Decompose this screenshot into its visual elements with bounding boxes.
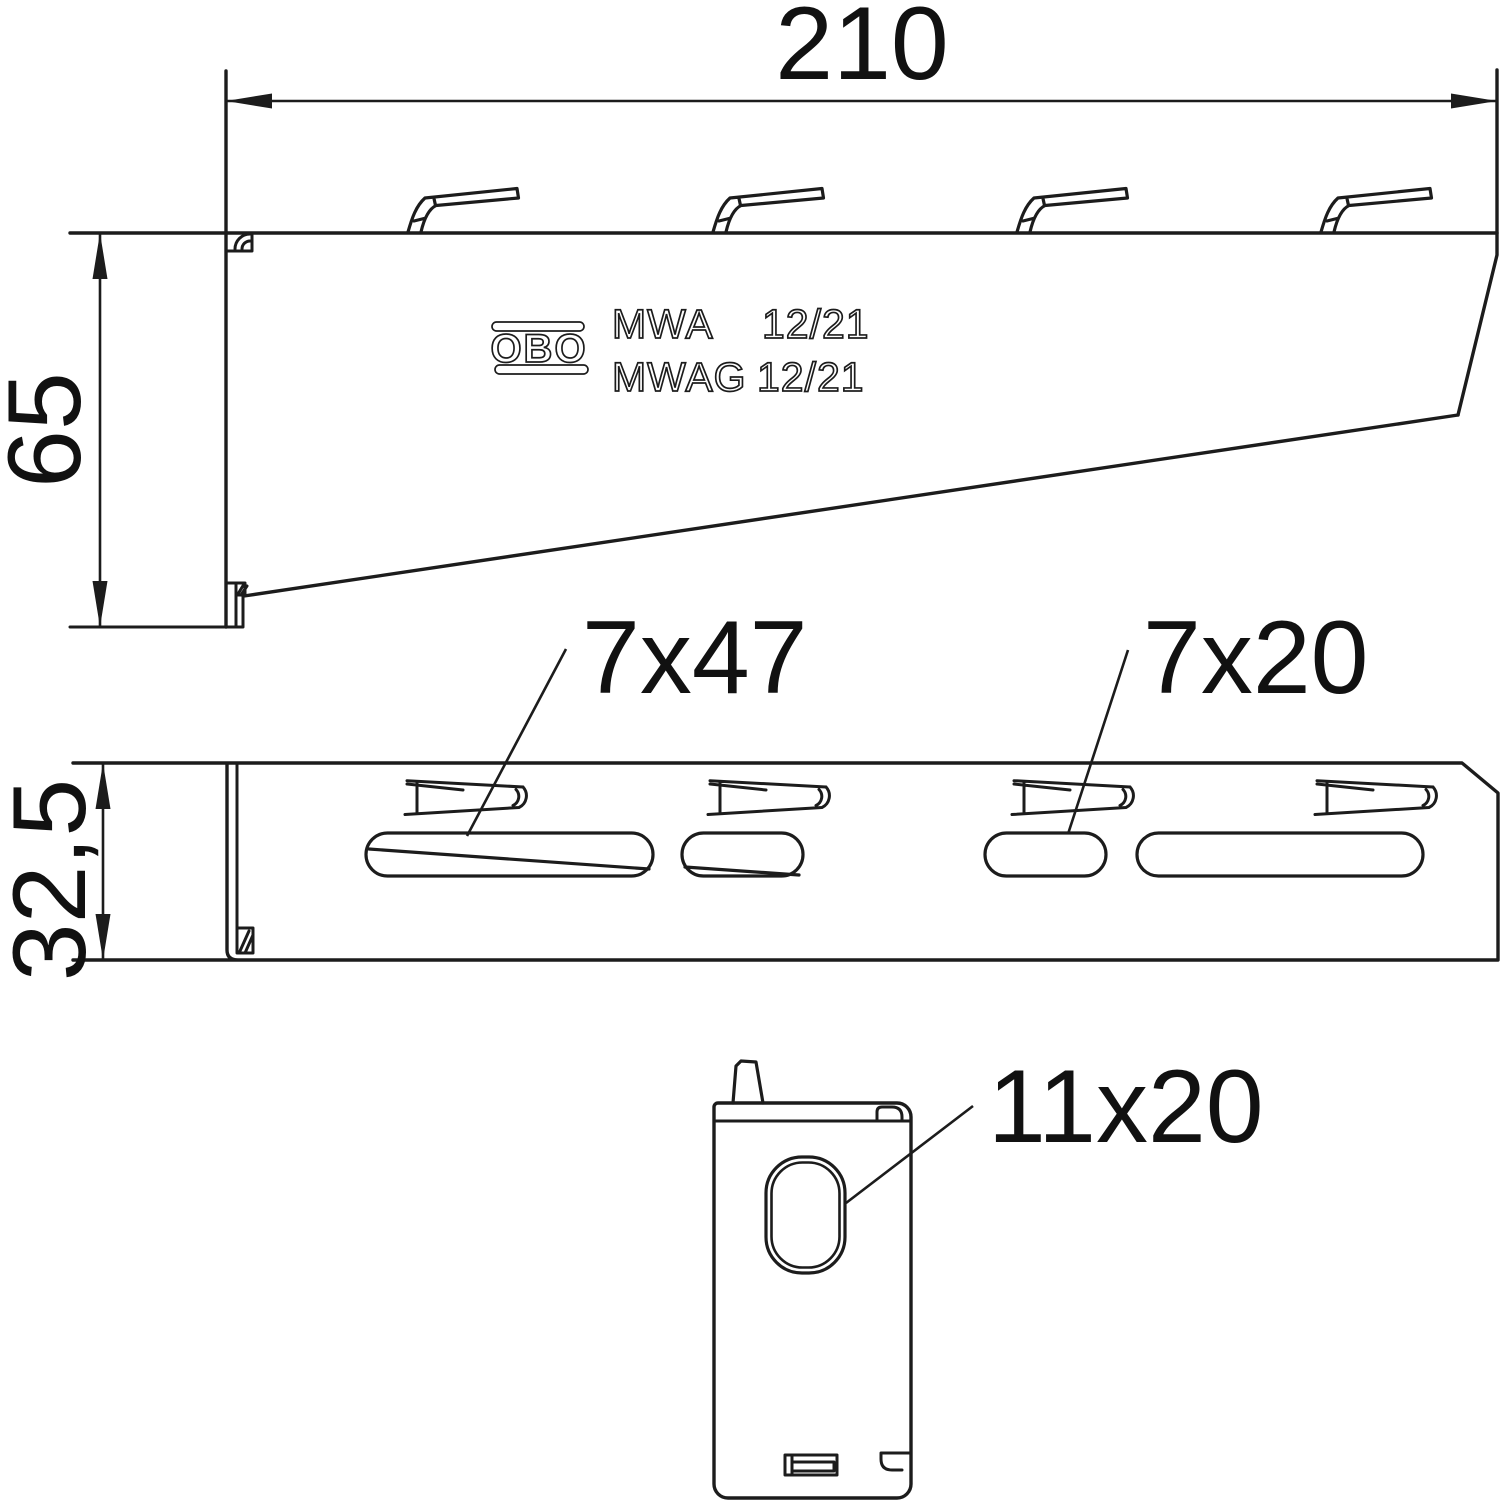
plan-hook-1	[405, 781, 526, 815]
marking-row2-type: 12/21	[757, 354, 865, 400]
dim-height-label: 65	[0, 372, 103, 488]
plan-view	[73, 763, 1498, 960]
end-view	[714, 1061, 911, 1498]
dimension-65: 65	[0, 233, 108, 627]
side-view	[70, 70, 1497, 627]
product-marking: OBO MWA 12/21 MWAG 12/21	[490, 301, 869, 400]
slot-short-label: 7x20	[1143, 600, 1369, 716]
end-view-top-fold	[716, 1107, 911, 1121]
dim-210-arrow-right	[1451, 94, 1497, 109]
dim-width-label: 210	[775, 0, 949, 102]
end-view-bottom-fold	[881, 1453, 911, 1470]
end-hole-label: 11x20	[988, 1049, 1264, 1165]
end-view-tab	[733, 1061, 763, 1103]
dimension-32-5: 32,5	[0, 763, 111, 981]
side-hook-3	[1017, 189, 1128, 233]
plan-view-fold	[237, 763, 253, 953]
marking-row2-model: MWAG	[612, 354, 747, 400]
slot-short-1-edge	[685, 867, 799, 875]
dimension-210: 210	[226, 0, 1497, 109]
dim-65-arrow-bottom	[93, 581, 108, 627]
slot-long-2	[1137, 833, 1423, 876]
obo-logo-text: OBO	[490, 327, 587, 371]
side-view-bottom-edge	[244, 415, 1458, 596]
slot-long-1-edge	[369, 849, 649, 869]
side-hook-1	[408, 189, 519, 233]
slot-short-2	[985, 833, 1106, 876]
plan-view-outline	[73, 763, 1498, 960]
side-view-right-edge	[1458, 70, 1497, 415]
side-hook-2	[713, 189, 824, 233]
plan-hook-4	[1315, 781, 1436, 815]
end-view-bottom-slot	[785, 1455, 837, 1475]
side-view-top-lip	[226, 234, 252, 251]
technical-drawing: 210 65 OBO MWA 12/21 MWAG 12/21	[0, 0, 1500, 1500]
plan-view-slots	[366, 833, 1423, 876]
marking-row1-model: MWA	[612, 301, 714, 347]
marking-row1-type: 12/21	[762, 301, 870, 347]
dim-depth-label: 32,5	[0, 779, 108, 981]
slot-callouts: 7x47 7x20	[467, 600, 1369, 836]
side-view-hooks	[408, 189, 1432, 233]
dim-210-arrow-left	[226, 94, 272, 109]
end-hole-inner	[772, 1163, 840, 1268]
plan-view-hooks	[405, 781, 1436, 815]
plan-hook-3	[1012, 781, 1133, 815]
dim-65-arrow-top	[93, 233, 108, 279]
slot-long-label: 7x47	[582, 600, 808, 716]
hole-callout: 11x20	[846, 1049, 1264, 1203]
technical-drawing-page: 210 65 OBO MWA 12/21 MWAG 12/21	[0, 0, 1500, 1500]
plan-hook-2	[708, 781, 829, 815]
side-hook-4	[1321, 189, 1432, 233]
slot-long-1	[366, 833, 653, 876]
